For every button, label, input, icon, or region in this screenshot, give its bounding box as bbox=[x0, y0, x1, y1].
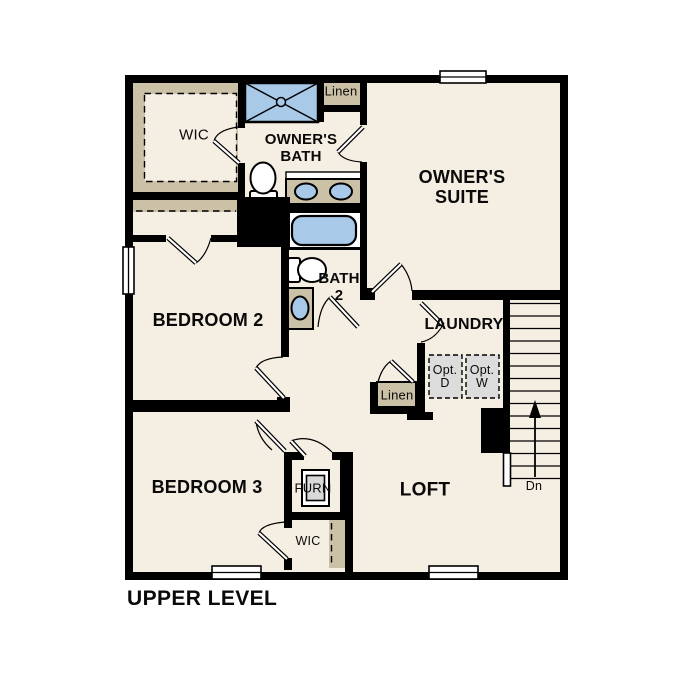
room-label-linen-top: Linen bbox=[325, 85, 358, 100]
room-label-bedroom-3: BEDROOM 3 bbox=[152, 477, 263, 497]
window-owners-suite bbox=[440, 71, 486, 83]
stair-railing bbox=[504, 453, 511, 486]
room-label-wic-top: WIC bbox=[179, 128, 209, 145]
plan-title: UPPER LEVEL bbox=[127, 587, 277, 611]
vanity-owners-bath bbox=[286, 172, 362, 205]
wic-bottom-shelf bbox=[329, 520, 345, 568]
window-loft bbox=[429, 566, 478, 579]
room-label-wic-bottom: WIC bbox=[296, 534, 321, 548]
room-label-laundry: LAUNDRY bbox=[424, 316, 503, 334]
room-label-bath-2: BATH 2 bbox=[318, 271, 359, 305]
floor-plan-upper-level: WIC OWNER'S BATH Linen OWNER'S SUITE BED… bbox=[0, 0, 687, 687]
bathtub bbox=[289, 213, 360, 248]
sink-right bbox=[330, 184, 352, 200]
room-label-loft: LOFT bbox=[400, 479, 450, 500]
room-label-owners-suite: OWNER'S SUITE bbox=[419, 167, 506, 207]
chase-black-fill bbox=[237, 197, 290, 247]
window-bedroom3 bbox=[212, 566, 261, 579]
room-label-bedroom-2: BEDROOM 2 bbox=[153, 310, 264, 330]
floor-plan-drawing bbox=[0, 0, 687, 687]
room-label-owners-bath: OWNER'S BATH bbox=[265, 132, 337, 166]
label-opt-dryer: Opt. D bbox=[433, 364, 457, 390]
sink bbox=[292, 297, 309, 320]
window-bedroom2 bbox=[123, 247, 134, 294]
room-label-furnace: FURN bbox=[295, 482, 332, 497]
sink-left bbox=[295, 184, 317, 200]
label-opt-washer: Opt. W bbox=[470, 364, 494, 390]
stairs-down-label: Dn bbox=[526, 479, 542, 493]
bedroom2-closet bbox=[133, 200, 238, 235]
vanity-bath2 bbox=[287, 288, 313, 329]
shower bbox=[245, 83, 318, 122]
room-label-linen-mid: Linen bbox=[381, 389, 414, 404]
